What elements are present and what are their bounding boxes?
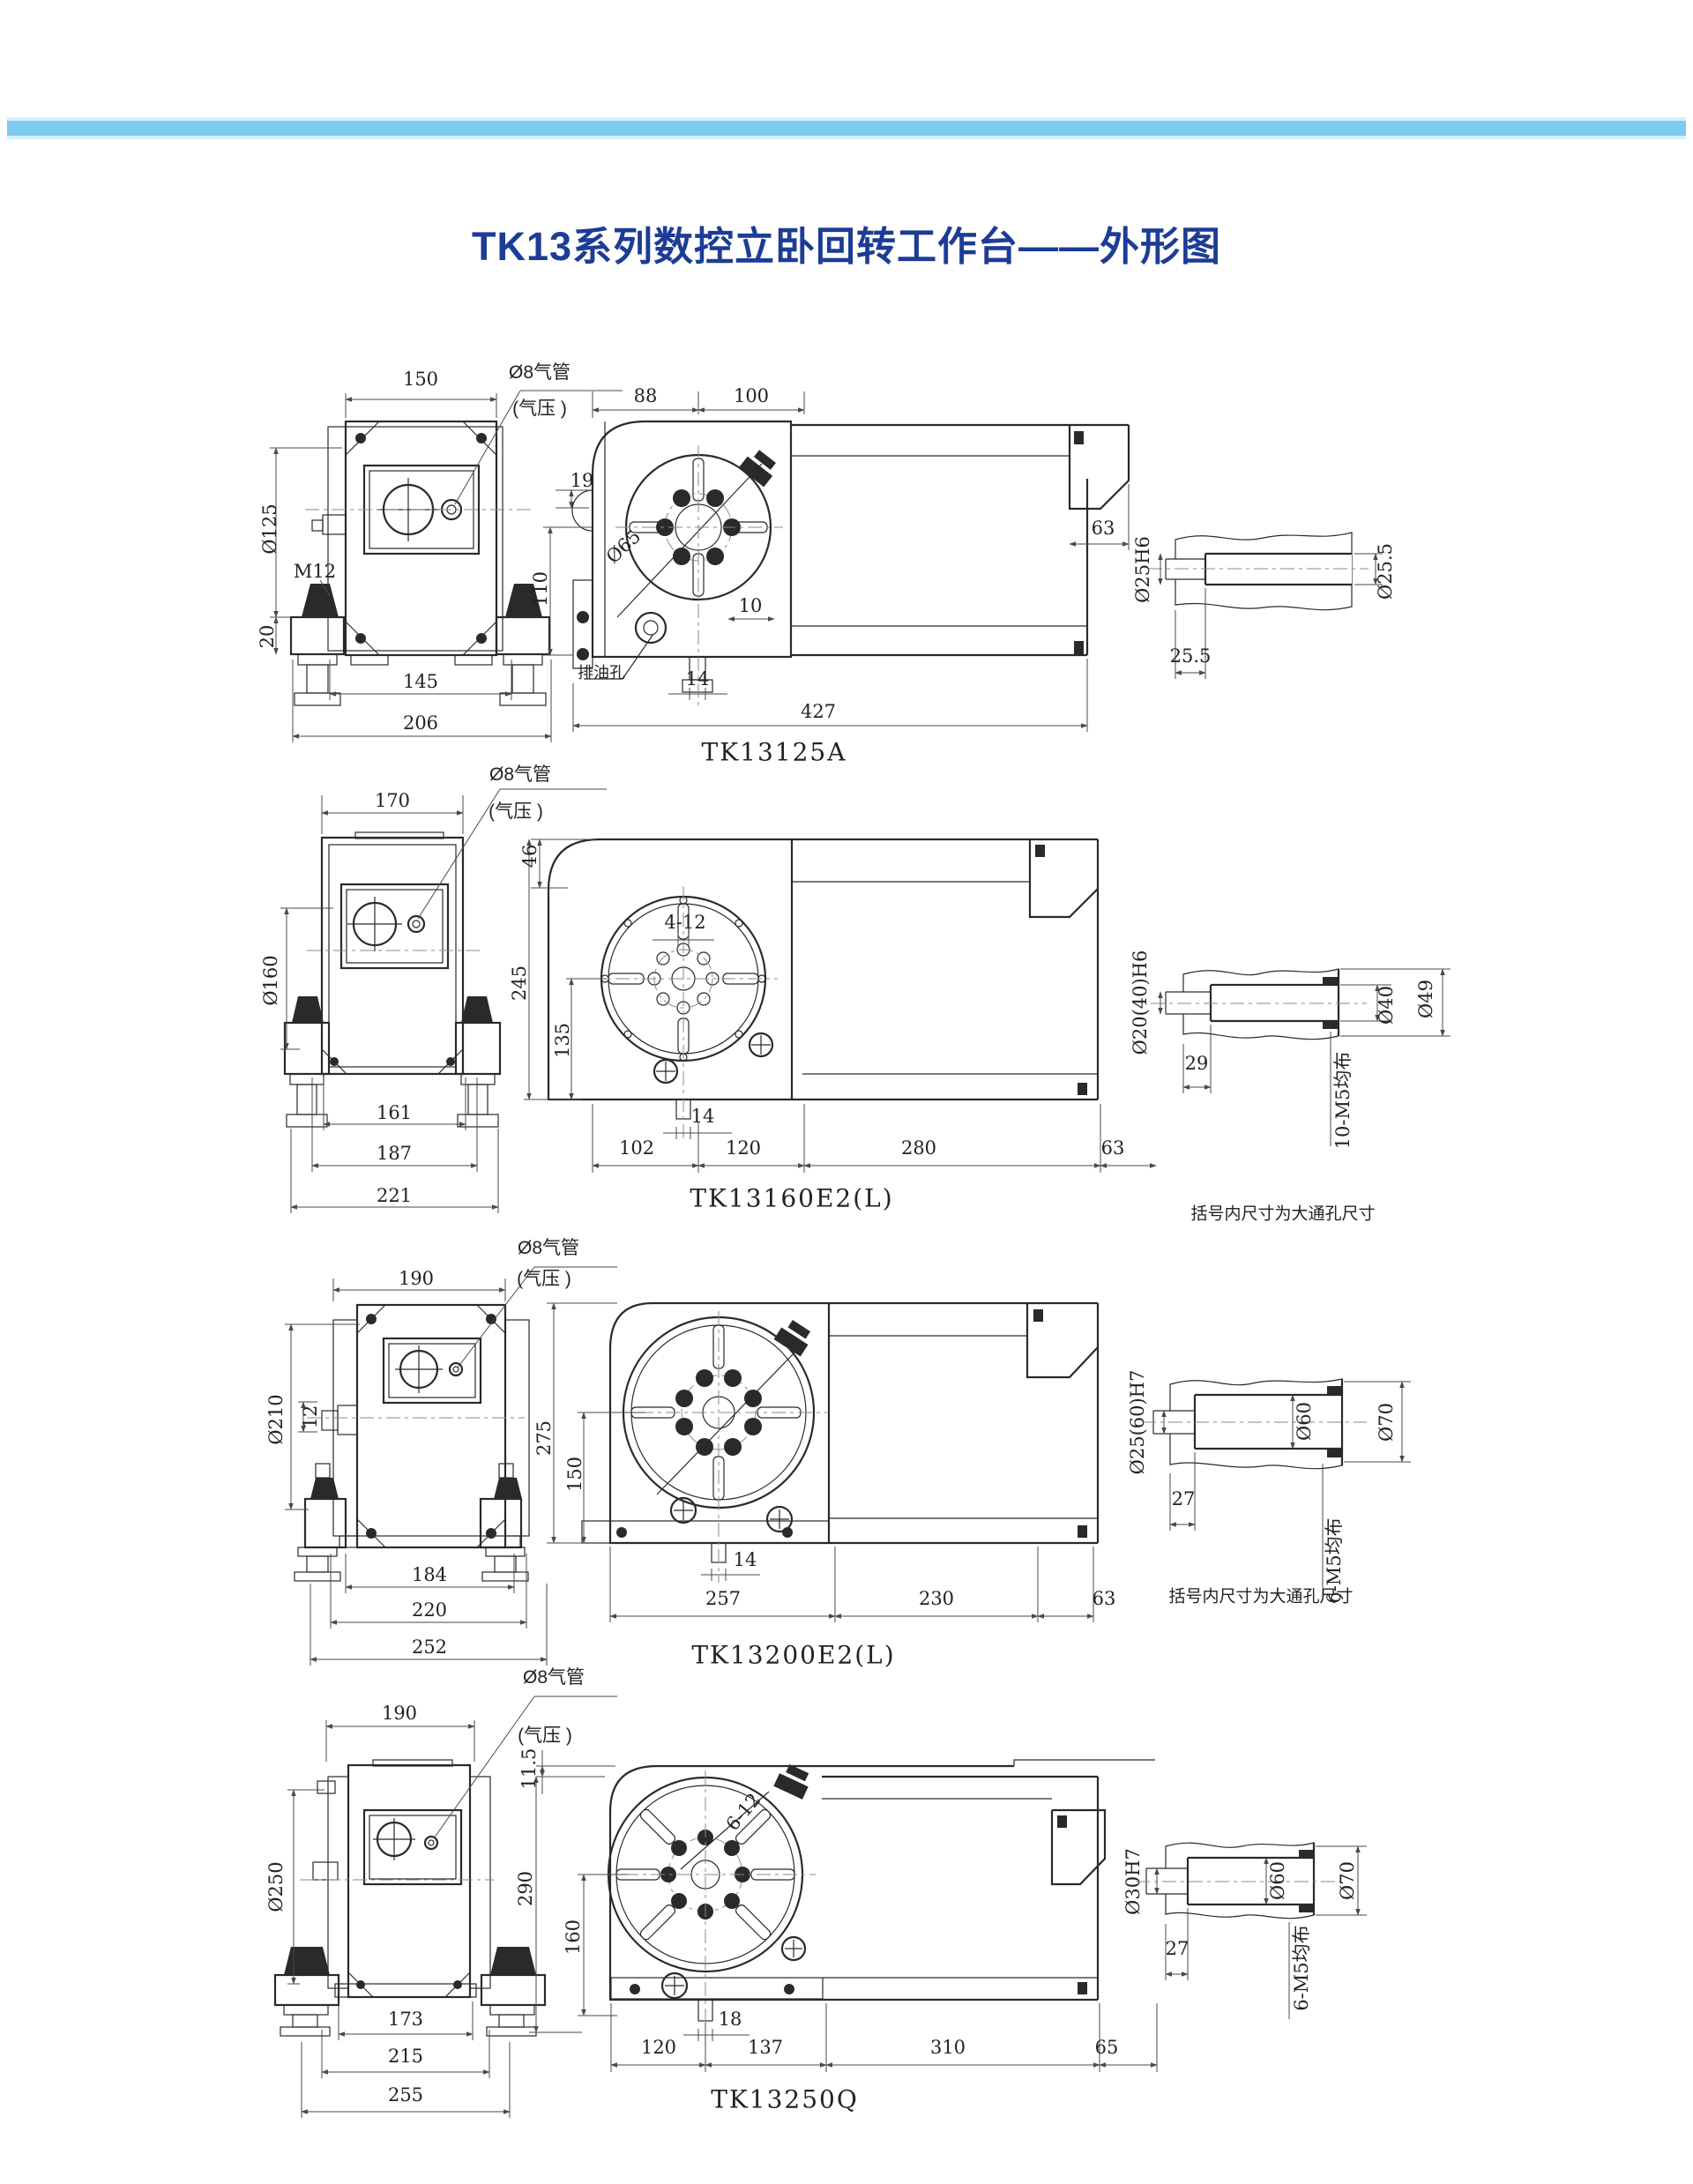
front-view-r3 [295,1305,529,1581]
dim-60-r4: Ø60 [1267,1861,1288,1900]
dim-body-dia-r2: Ø160 [260,955,281,1005]
dim-top-width-r2: 170 [375,790,410,811]
model-label-r2: TK13160E2(L) [690,1184,893,1213]
side-view-r3 [582,1303,1098,1583]
shaft-detail-r4 [1136,1843,1340,1919]
dim-187-r2: 187 [377,1143,412,1164]
model-label-r4: TK13250Q [711,2085,859,2114]
dim-19-r1: 19 [571,470,594,491]
bracket-note-r3: 括号内尺寸为大通孔尺寸 [1168,1584,1353,1607]
clamp-icon-r4 [773,1762,813,1799]
dim-bore-r4: Ø30H7 [1122,1848,1144,1915]
dim-27-r3: 27 [1172,1488,1196,1509]
dim-29-r2: 29 [1185,1053,1209,1074]
dim-184-r3: 184 [412,1564,447,1585]
shaft-detail-r3 [1142,1379,1367,1469]
dim-top-width-r3: 190 [399,1268,434,1289]
dim-bolt-r1: M12 [294,561,336,582]
dim-70-r3: Ø70 [1376,1403,1397,1442]
dim-65-r4: 65 [1095,2037,1119,2058]
drain-hole-label-r1: 排油孔 [578,660,625,683]
dim-top-width-r1: 150 [403,369,438,390]
dim-290-r4: 290 [515,1871,536,1906]
dim-245-r2: 245 [509,965,530,1001]
air-pressure-label-r3: (气压 ) [517,1264,571,1291]
dim-220-r3: 220 [412,1599,447,1621]
shaft-detail-r1 [1148,533,1369,610]
air-pipe-label-r4: Ø8气管 [523,1663,585,1689]
dim-102-r2: 102 [619,1137,654,1159]
bracket-note-r2: 括号内尺寸为大通孔尺寸 [1190,1201,1375,1225]
front-view-r2 [285,832,500,1127]
dim-110-r1: 110 [530,571,551,607]
dim-bore-right-r1: Ø25.5 [1375,543,1396,600]
dim-bore-r3: Ø25(60)H7 [1127,1370,1148,1475]
side-view-r1 [572,421,1129,710]
air-pipe-label-r3: Ø8气管 [518,1234,579,1260]
dim-40-r2: Ø40 [1376,986,1397,1025]
model-label-r3: TK13200E2(L) [691,1641,895,1670]
dim-depth-r1: 25.5 [1170,645,1212,667]
dim-161-r2: 161 [377,1102,412,1123]
dim-12-r3: 12 [300,1405,321,1429]
dim-120-r4: 120 [641,2037,676,2058]
dim-total-length-r1: 427 [801,701,836,722]
dim-18-r4: 18 [719,2009,742,2030]
dim-275-r3: 275 [533,1420,555,1456]
technical-drawing-canvas [0,0,1693,2184]
dim-63-r2: 63 [1101,1137,1125,1159]
dim-top-width-r4: 190 [382,1703,417,1724]
thread-note-r2: 10-M5均布 [1329,1052,1355,1150]
dim-body-dia-r3: Ø210 [265,1394,287,1444]
dim-46-r2: 46 [519,845,541,868]
shaft-detail-r2 [1151,969,1367,1040]
dim-bore-r2: Ø20(40)H6 [1130,950,1151,1055]
air-pressure-label-r4: (气压 ) [518,1721,572,1748]
dim-160-r4: 160 [563,1919,584,1955]
dim-255-r4: 255 [388,2084,423,2106]
side-view-r4 [598,1760,1155,2041]
dim-310-r4: 310 [930,2037,966,2058]
dim-88-r1: 88 [634,385,658,406]
dim-body-dia-r4: Ø250 [265,1861,287,1912]
dim-173-r4: 173 [388,2009,423,2030]
dim-63-r1: 63 [1092,518,1115,539]
dim-252-r3: 252 [412,1636,447,1658]
dim-63-r3: 63 [1093,1588,1116,1609]
dim-257-r3: 257 [705,1588,741,1609]
dim-14-r3: 14 [734,1549,757,1570]
air-pipe-label-r1: Ø8气管 [509,358,571,384]
dim-11-5-r4: 11.5 [518,1748,540,1790]
air-pressure-label-r2: (气压 ) [489,797,543,824]
dim-slots-r2: 4-12 [664,912,705,933]
dim-10-r1: 10 [739,595,763,616]
air-pressure-label-r1: (气压 ) [512,394,567,421]
dim-60-r3: Ø60 [1294,1402,1315,1441]
dim-221-r2: 221 [377,1185,412,1206]
thread-note-r4: 6-M5均布 [1287,1925,1314,2010]
dim-27-r4: 27 [1166,1938,1190,1959]
front-view-r4 [275,1760,545,2036]
dim-14-r1: 14 [686,668,710,689]
dim-base-width-r1: 206 [403,712,438,734]
dim-120-r2: 120 [726,1137,761,1159]
dim-49-r2: Ø49 [1415,980,1436,1018]
dim-foot-height-r1: 20 [257,625,278,649]
dim-100-r1: 100 [734,385,769,406]
dim-bore-left-r1: Ø25H6 [1132,536,1153,603]
dim-150-r3: 150 [564,1457,585,1492]
air-pipe-label-r2: Ø8气管 [489,760,551,786]
dim-137-r4: 137 [748,2037,783,2058]
dim-body-dia-r1: Ø125 [259,503,280,554]
dim-135-r2: 135 [552,1023,573,1058]
dim-280-r2: 280 [901,1137,936,1159]
dim-14-r2: 14 [691,1106,715,1127]
model-label-r1: TK13125A [702,738,847,767]
dim-70-r4: Ø70 [1337,1861,1358,1900]
dim-215-r4: 215 [388,2046,423,2067]
dim-feet-width-r1: 145 [403,671,438,692]
dim-230-r3: 230 [919,1588,954,1609]
side-view-r2 [548,839,1098,1139]
